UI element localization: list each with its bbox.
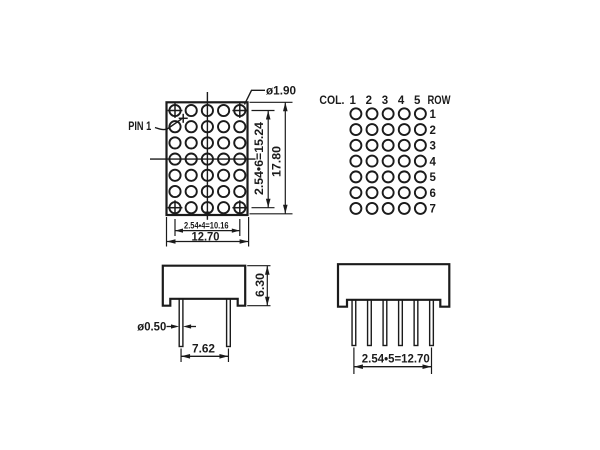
svg-text:6.30: 6.30: [253, 273, 267, 297]
svg-text:PIN 1: PIN 1: [128, 121, 151, 133]
svg-text:3: 3: [382, 95, 388, 107]
svg-text:4: 4: [398, 95, 405, 107]
svg-text:2: 2: [366, 95, 372, 107]
svg-text:1: 1: [349, 95, 356, 107]
svg-text:ø0.50: ø0.50: [137, 319, 166, 333]
svg-text:2: 2: [430, 125, 436, 137]
svg-text:COL.: COL.: [319, 93, 344, 107]
svg-text:ROW: ROW: [428, 93, 452, 107]
svg-text:3: 3: [430, 141, 436, 153]
svg-text:5: 5: [414, 95, 421, 107]
svg-text:4: 4: [430, 156, 437, 168]
svg-text:1: 1: [430, 109, 437, 121]
svg-text:5: 5: [430, 172, 437, 184]
svg-text:12.70: 12.70: [192, 230, 220, 244]
svg-text:17.80: 17.80: [270, 146, 284, 177]
svg-text:7: 7: [430, 204, 436, 216]
svg-text:2.54•5=12.70: 2.54•5=12.70: [362, 352, 430, 366]
svg-text:6: 6: [430, 188, 436, 200]
svg-text:2.54•6=15.24: 2.54•6=15.24: [254, 121, 266, 195]
svg-text:7.62: 7.62: [192, 341, 215, 355]
svg-text:ø1.90: ø1.90: [266, 84, 296, 98]
